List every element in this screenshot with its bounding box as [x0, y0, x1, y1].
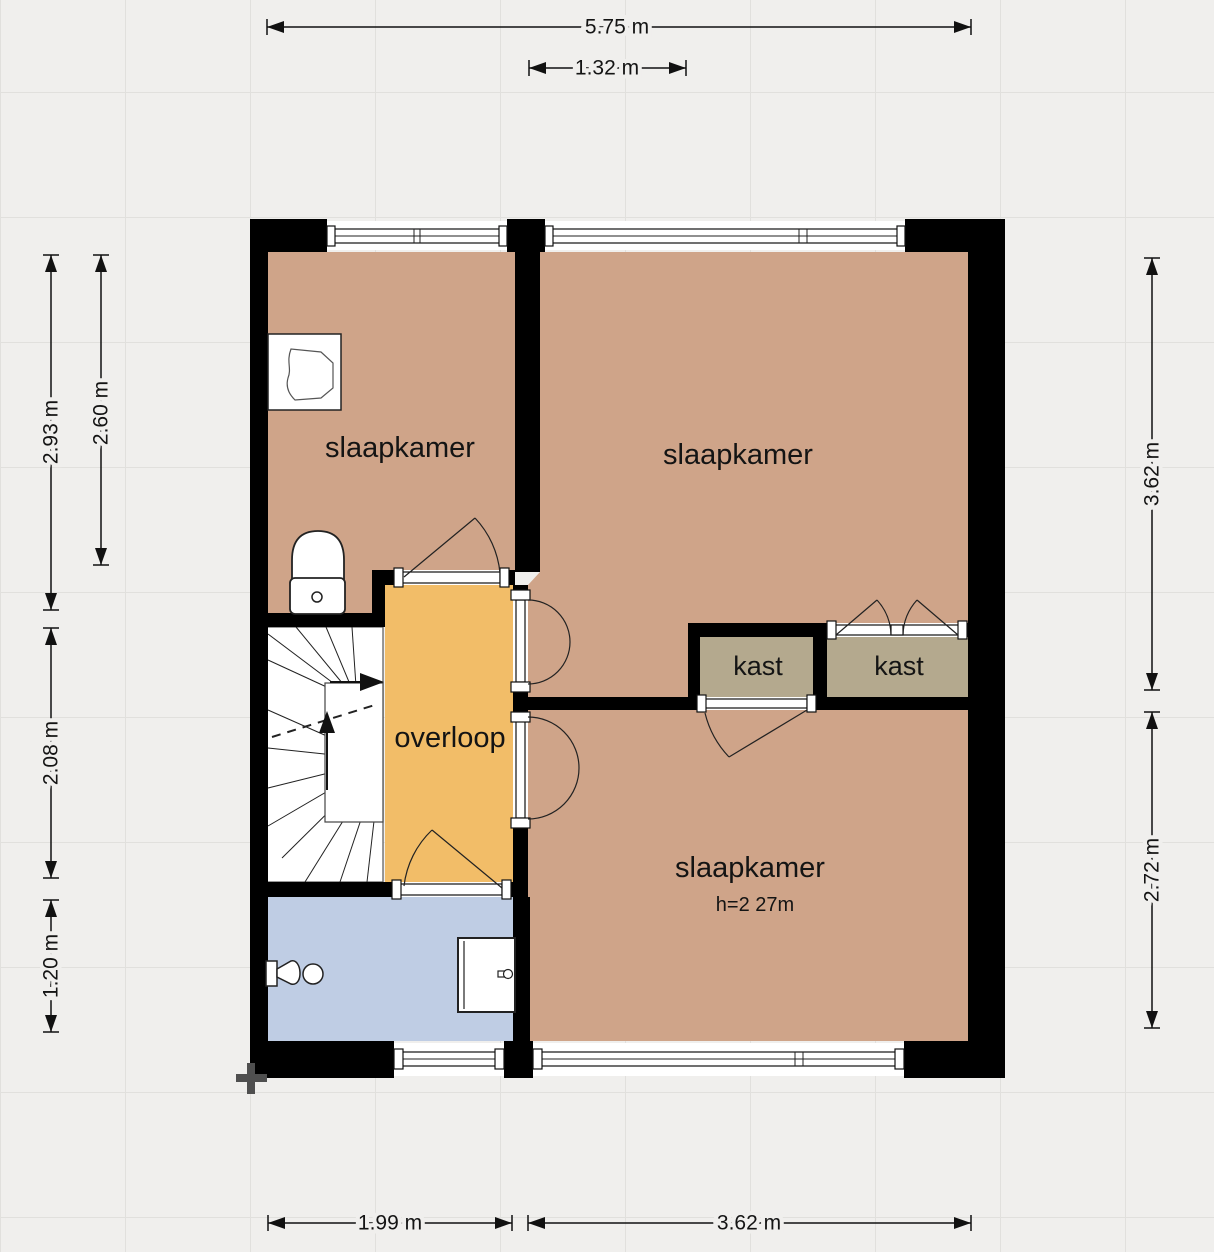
svg-text:2.08 m: 2.08 m — [40, 721, 63, 785]
svg-text:1.20 m: 1.20 m — [40, 934, 63, 998]
label-closet-left: kast — [733, 651, 783, 681]
label-bedroom-top-left: slaapkamer — [325, 432, 475, 464]
window-top-right[interactable] — [545, 221, 905, 250]
svg-text:2.72 m: 2.72 m — [1141, 838, 1164, 902]
window-top-left[interactable] — [327, 221, 507, 250]
dimension-right-upper: 3.62 m — [1141, 258, 1164, 690]
label-closet-right: kast — [874, 651, 924, 681]
dimension-left-middle: 2.08 m — [40, 628, 63, 878]
staircase[interactable] — [267, 627, 384, 882]
floorplan-canvas: slaapkamer slaapkamer slaapkamer h=2 27m… — [0, 0, 1214, 1252]
svg-text:3.62 m: 3.62 m — [717, 1212, 781, 1235]
dimension-left-inner: 2.60 m — [90, 255, 113, 565]
dimension-top-total: 5.75 m — [267, 16, 971, 39]
dimension-right-lower: 2.72 m — [1141, 712, 1164, 1028]
svg-text:5.75 m: 5.75 m — [585, 16, 649, 39]
shower-head-icon[interactable] — [266, 961, 323, 986]
dimension-left-lower: 1.20 m — [40, 900, 63, 1032]
svg-text:2.60 m: 2.60 m — [90, 381, 113, 445]
label-bedroom-bottom: slaapkamer — [675, 852, 825, 884]
floorplan-stage: slaapkamer slaapkamer slaapkamer h=2 27m… — [0, 0, 1214, 1252]
label-bedroom-bottom-height: h=2 27m — [716, 894, 794, 916]
svg-text:1.99 m: 1.99 m — [358, 1212, 422, 1235]
dimension-left-outer: 2.93 m — [40, 255, 63, 610]
shower-tray[interactable] — [458, 938, 515, 1012]
label-bedroom-top-right: slaapkamer — [663, 439, 813, 471]
svg-text:1.32 m: 1.32 m — [575, 57, 639, 80]
svg-text:3.62 m: 3.62 m — [1141, 442, 1164, 506]
window-bottom-bedroom[interactable] — [533, 1043, 904, 1076]
dimension-bottom-right: 3.62 m — [528, 1212, 971, 1235]
toilet-icon[interactable] — [290, 531, 345, 614]
dimension-bottom-left: 1.99 m — [268, 1212, 512, 1235]
window-bottom-bathroom[interactable] — [394, 1043, 504, 1076]
sink-icon[interactable] — [268, 334, 341, 410]
dimension-top-window: 1.32 m — [529, 57, 686, 80]
svg-text:2.93 m: 2.93 m — [40, 400, 63, 464]
label-landing: overloop — [394, 722, 505, 754]
